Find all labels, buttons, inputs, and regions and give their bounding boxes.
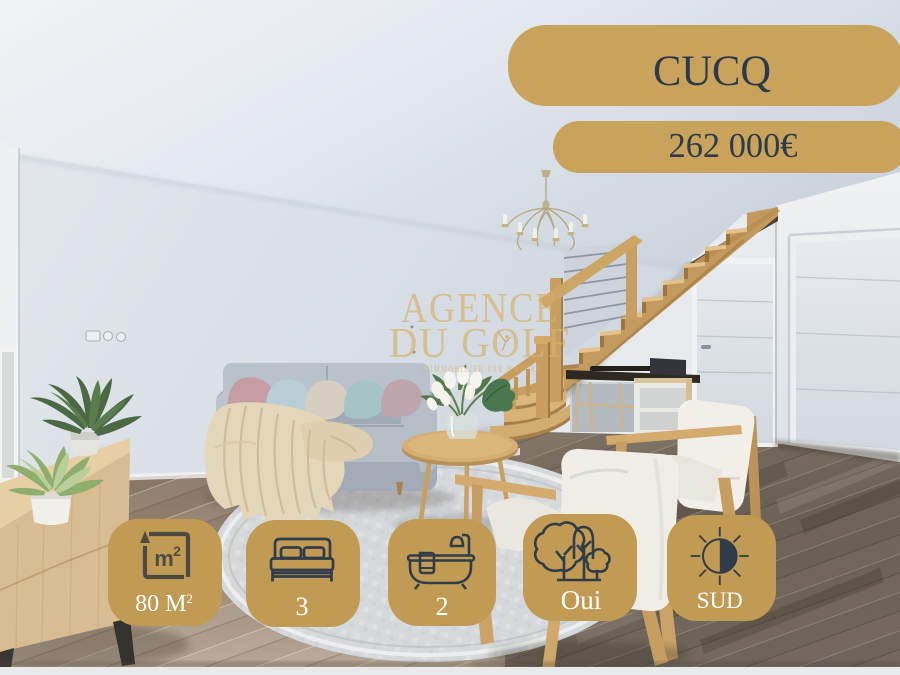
svg-text:CUCQ: CUCQ xyxy=(653,48,771,95)
svg-text:2: 2 xyxy=(173,543,181,559)
svg-text:80 M2: 80 M2 xyxy=(135,591,193,617)
svg-text:Oui: Oui xyxy=(561,585,602,615)
svg-text:3: 3 xyxy=(296,592,309,621)
svg-text:2: 2 xyxy=(436,592,449,621)
svg-text:L'IMMOBILIER PAR NATURE: L'IMMOBILIER PAR NATURE xyxy=(422,364,542,374)
svg-text:262 000€: 262 000€ xyxy=(669,126,798,165)
svg-text:DU GOLF: DU GOLF xyxy=(389,321,571,367)
svg-text:m: m xyxy=(154,546,174,571)
svg-text:SUD: SUD xyxy=(697,588,743,613)
